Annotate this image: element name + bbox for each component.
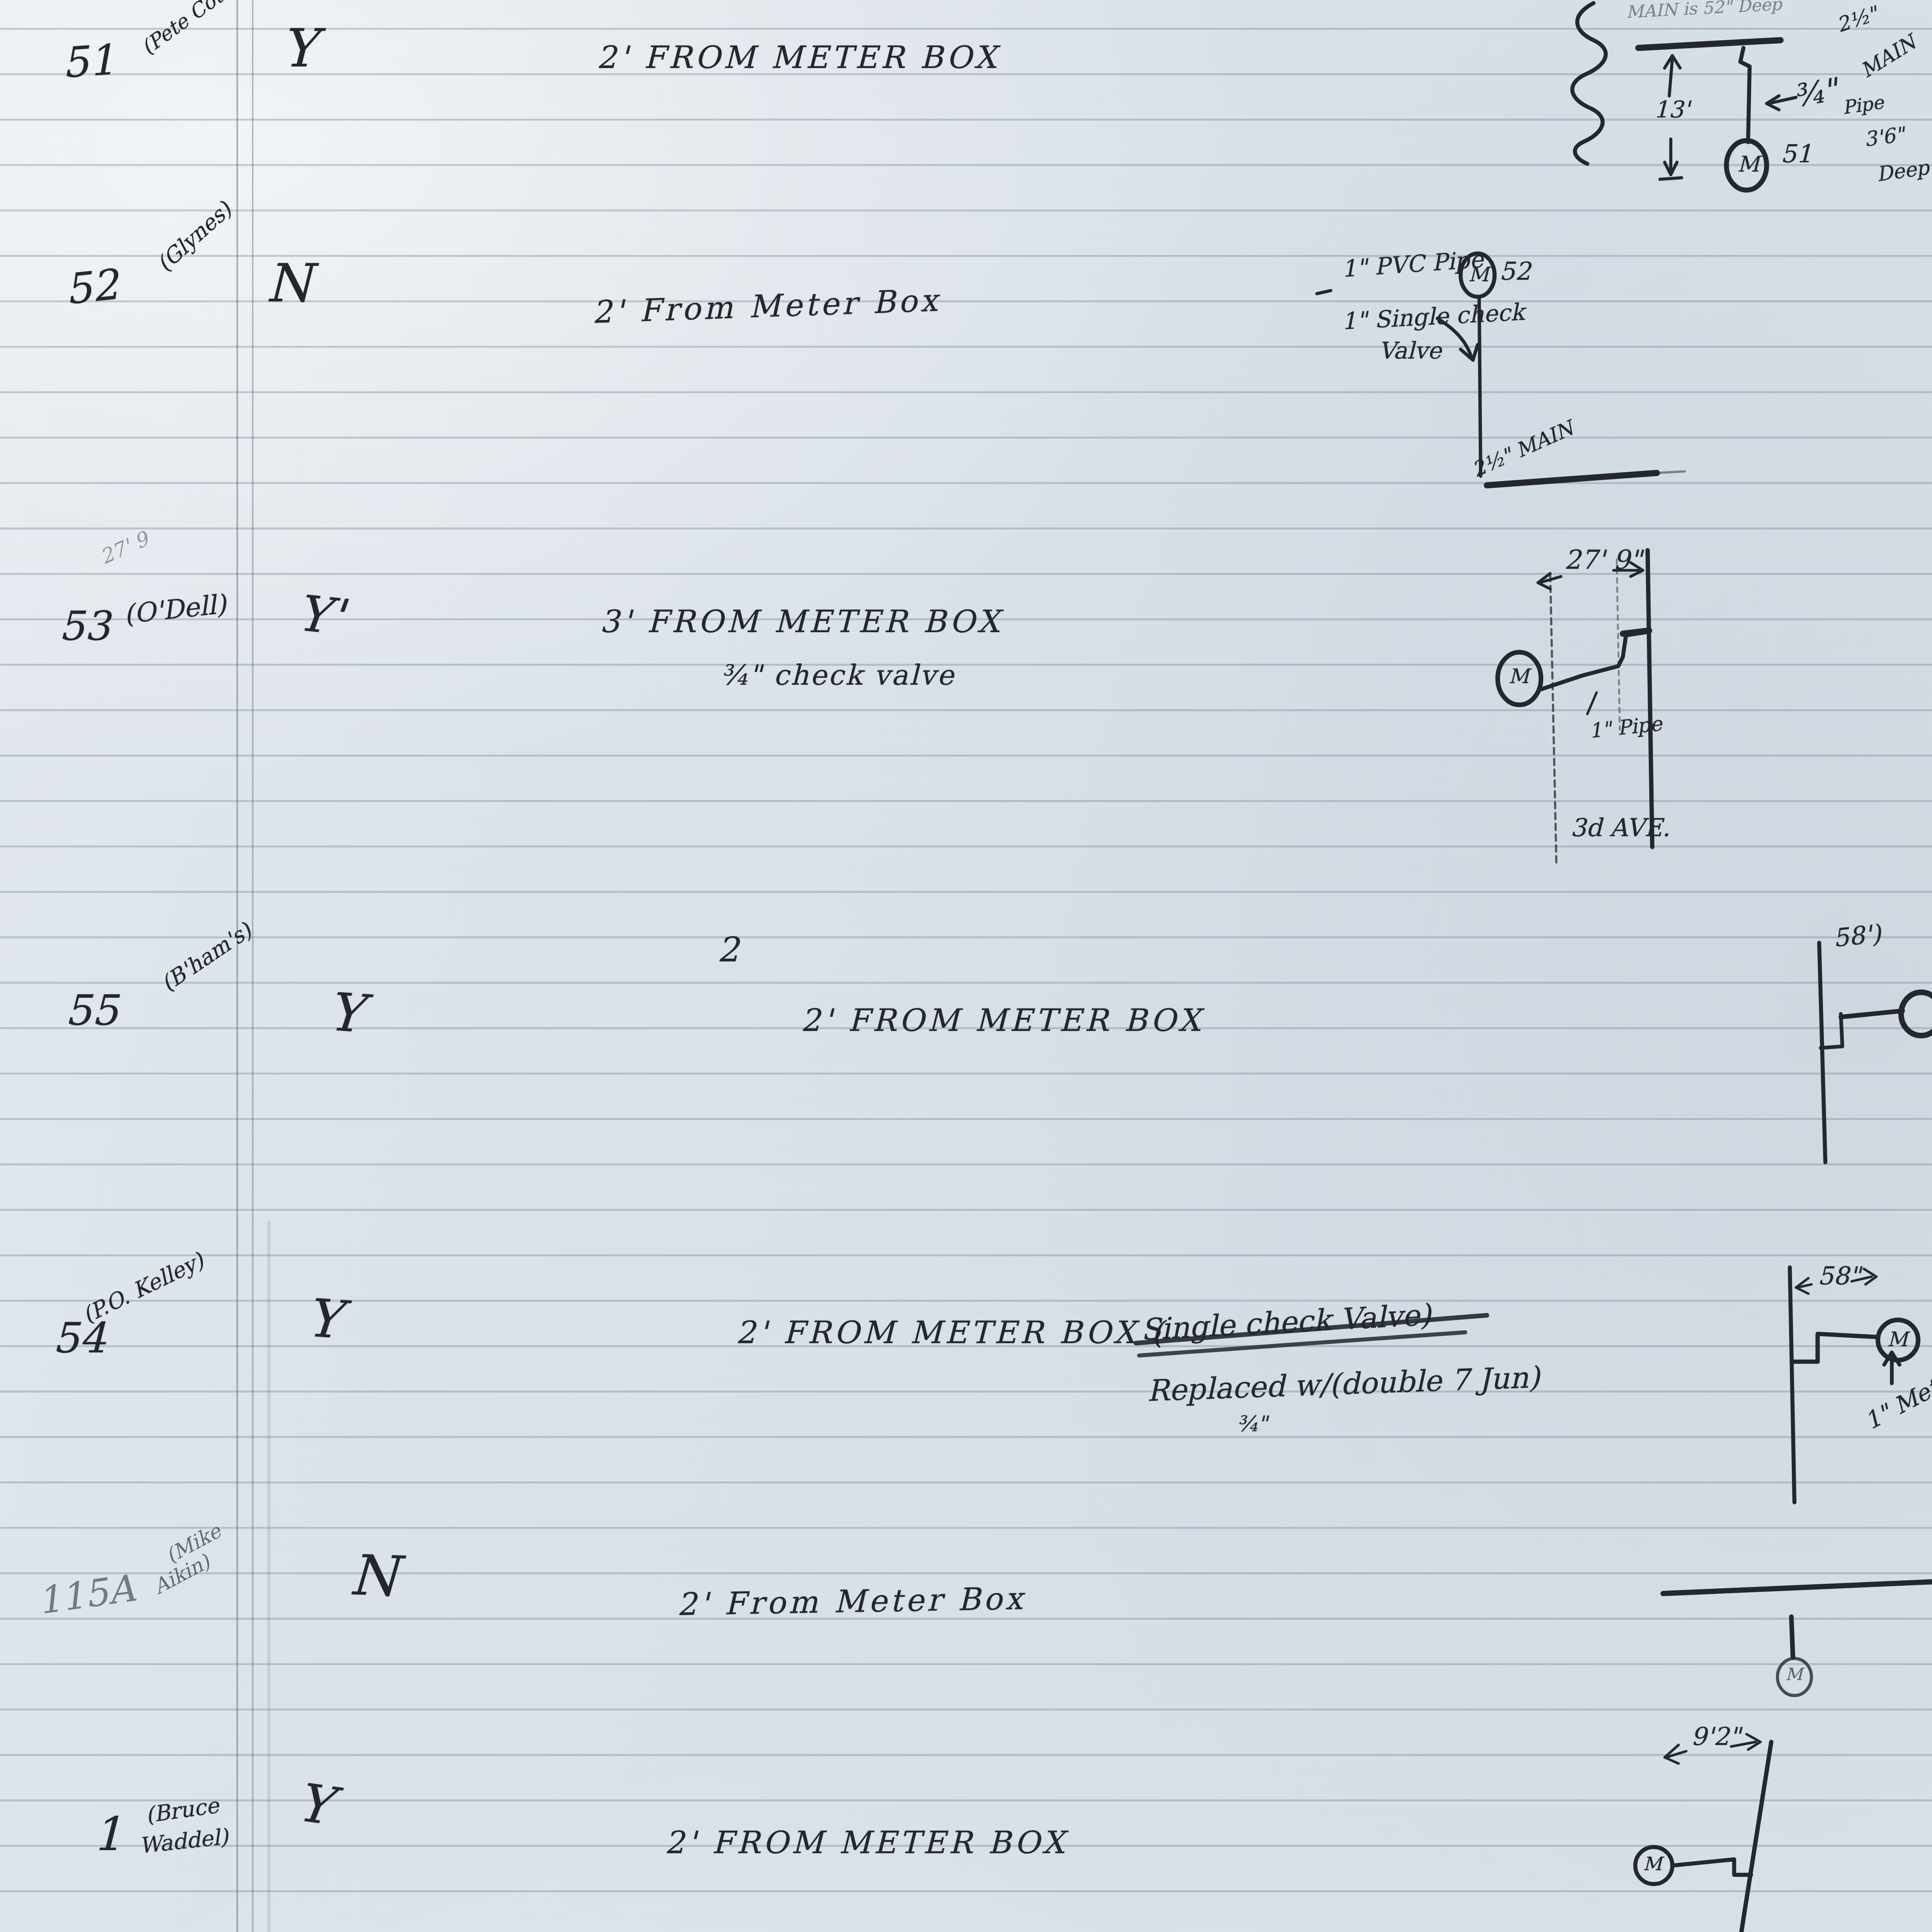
row51-pipe-size: ¾": [1791, 74, 1840, 112]
row53-pipe-tap: [1623, 631, 1649, 634]
row-answer: Y: [326, 985, 364, 1040]
row-answer: Y: [281, 22, 316, 74]
row54-main-line: [1790, 1267, 1794, 1502]
row53-faint-line: [1617, 560, 1620, 730]
row52-meter-number: 52: [1499, 260, 1531, 284]
row51-arrow-foot: [1660, 178, 1682, 179]
row-id: 51: [60, 38, 116, 83]
row-note: 2' FROM METER BOX: [665, 1827, 1067, 1858]
row-answer: Y: [304, 1291, 342, 1346]
row-note: 2' FROM METER BOX (: [736, 1317, 1167, 1348]
row53-main-line: [1648, 550, 1652, 847]
row53-meter-letter: M: [1509, 666, 1529, 686]
row54-replace-frac: ¾": [1236, 1413, 1267, 1434]
row51-up-arrow: [1669, 59, 1672, 96]
row51-offset-depth: 13': [1654, 99, 1690, 122]
row-answer: N: [349, 1548, 399, 1605]
row51-service-pipe: [1740, 48, 1750, 142]
row51-meter-number: 51: [1781, 142, 1812, 167]
row53-service-pipe: [1541, 632, 1646, 689]
row51-ground-squiggle: [1572, 3, 1605, 164]
row51-main-line: [1638, 40, 1781, 48]
row54-dimension: 58": [1818, 1264, 1861, 1289]
row-id: 55: [65, 989, 118, 1031]
row52-tick: [1317, 291, 1331, 294]
row55-dimension: 58'): [1832, 922, 1882, 952]
row54-service-pipe: [1793, 1334, 1876, 1362]
row-note: 2' From Meter Box: [677, 1583, 1026, 1620]
row52-main-line-faint: [1657, 471, 1685, 473]
row1-meter-letter: M: [1643, 1855, 1662, 1873]
row-note-2: ¾" check valve: [720, 662, 955, 689]
row51-pipe-word: Pipe: [1841, 93, 1884, 117]
row115a-service-tick: [1791, 1617, 1793, 1657]
row-id: 1: [93, 1811, 122, 1858]
row51-meter-letter: M: [1737, 153, 1759, 175]
row51-service-depth: 3'6": [1863, 124, 1906, 150]
row52-main-line: [1487, 473, 1657, 485]
row-id: 53: [59, 606, 110, 646]
row53-label-tick: [1587, 692, 1597, 714]
row53-street-label: 3d AVE.: [1570, 816, 1670, 841]
row115a-meter-letter: M: [1785, 1666, 1803, 1683]
row-answer: Y: [293, 1775, 335, 1832]
row53-dimension: 27' 9": [1564, 547, 1642, 573]
row52-valve-note-2: Valve: [1379, 340, 1441, 363]
row-id: 52: [63, 263, 120, 310]
row115a-main-line: [1663, 1581, 1932, 1594]
row55-main-line: [1819, 943, 1825, 1162]
row-note: 2' FROM METER BOX: [597, 42, 999, 73]
row-answer: Y': [294, 588, 345, 642]
row53-property-line: [1550, 575, 1556, 866]
row52-meter-letter: M: [1468, 264, 1489, 284]
row-note: 2' FROM METER BOX: [801, 1005, 1203, 1036]
row1-dimension: 9'2": [1691, 1725, 1741, 1750]
row55-service-pipe: [1841, 1011, 1903, 1017]
scanned-notebook-page: 51 (Pete Cote) Y 2' FROM METER BOX MAIN …: [0, 0, 1932, 1932]
row-answer: N: [266, 257, 312, 309]
row54-meter-letter: M: [1887, 1329, 1908, 1349]
row55-meter-circle: [1901, 992, 1932, 1036]
row55-pre-note: 2: [717, 934, 739, 968]
row1-service-pipe: [1672, 1859, 1751, 1875]
row1-main-line: [1733, 1742, 1771, 1932]
row-note: 3' FROM METER BOX: [600, 606, 1002, 637]
